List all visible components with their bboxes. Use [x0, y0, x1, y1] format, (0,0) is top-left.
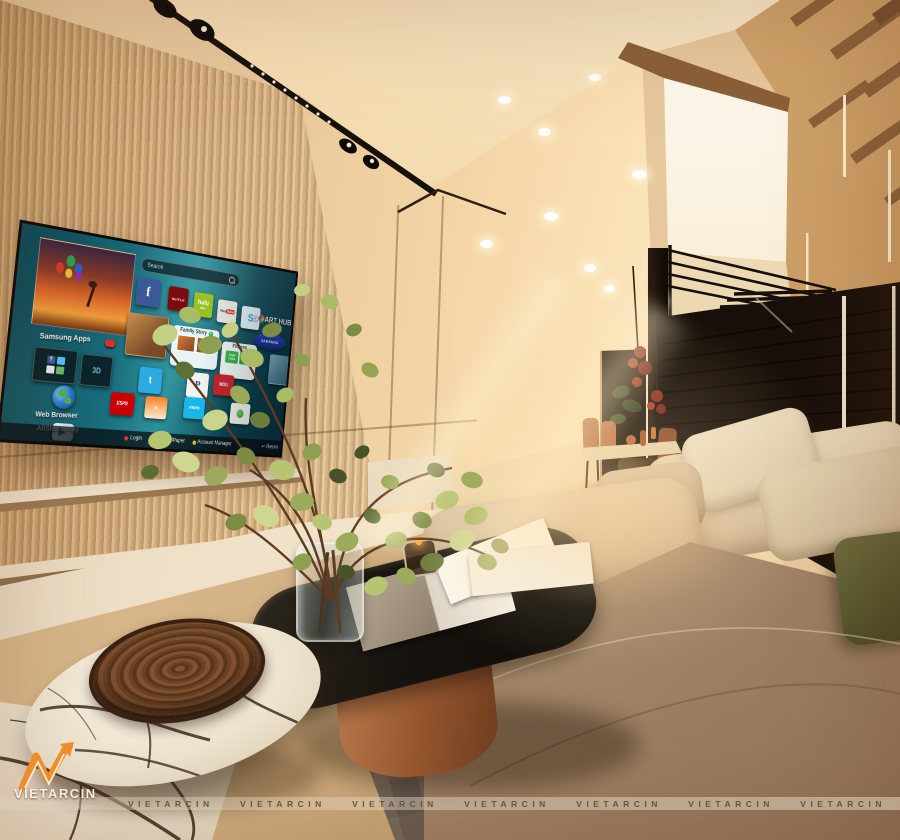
downlight: [498, 96, 511, 104]
vietarcin-logo-subtitle: ARCHITECTURE INTERIOR: [16, 804, 96, 809]
table-decor-ball: [626, 435, 636, 445]
watermark-strip: VIETARCIN VIETARCIN VIETARCIN VIETARCIN …: [0, 797, 900, 810]
watermark-text: VIETARCIN: [464, 799, 550, 809]
watermark-text: VIETARCIN: [240, 799, 326, 809]
candle-flame: [415, 539, 422, 546]
downlight: [538, 128, 551, 136]
downlight: [480, 240, 493, 248]
watermark-text: VIETARCIN: [128, 799, 214, 809]
watermark-text: VIETARCIN: [576, 799, 662, 809]
watermark-text: VIETARCIN: [688, 799, 774, 809]
table-decor-vase: [640, 430, 646, 446]
watermark-text: VIETARCIN: [800, 799, 886, 809]
glass-vase: [296, 542, 364, 642]
living-room-render: Samsung Apps f 3D Explore 3D Web Browser: [0, 0, 900, 840]
vietarcin-logo-mark: [16, 742, 80, 792]
vietarcin-logo: VIETARCIN ARCHITECTURE INTERIOR: [4, 742, 124, 822]
vietarcin-logo-brand: VIETARCIN: [14, 786, 97, 801]
downlight: [544, 212, 558, 221]
downlight: [632, 170, 647, 179]
downlight: [604, 285, 615, 292]
olive-pillow: [832, 529, 900, 647]
downlight: [589, 74, 601, 81]
watermark-text: VIETARCIN: [352, 799, 438, 809]
table-decor-vase: [651, 427, 656, 439]
candle: [402, 538, 441, 578]
downlight: [584, 264, 596, 272]
